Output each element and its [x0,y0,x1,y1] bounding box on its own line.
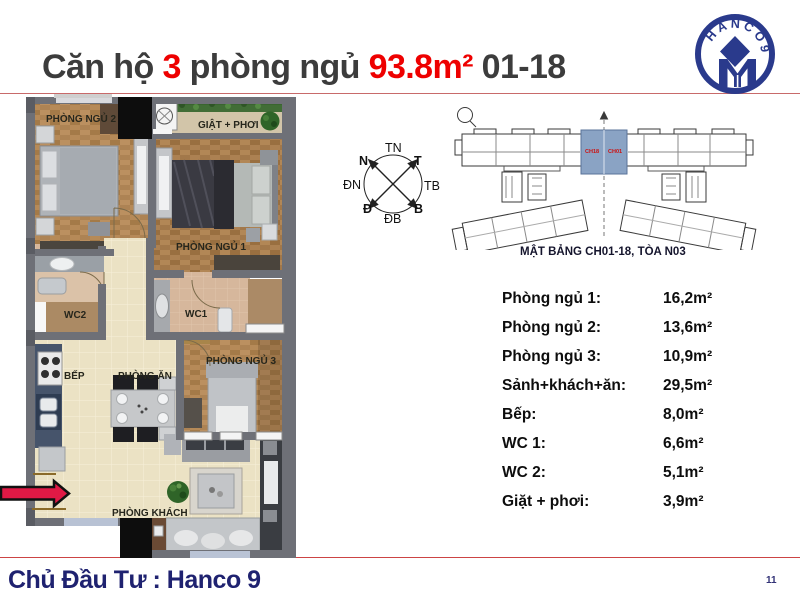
svg-text:PHÒNG NGỦ 2: PHÒNG NGỦ 2 [46,112,116,125]
svg-text:B: B [414,202,423,216]
svg-text:PHÒNG NGỦ 1: PHÒNG NGỦ 1 [176,240,246,253]
svg-text:PHÒNG ĂN: PHÒNG ĂN [118,369,172,382]
svg-text:CH01: CH01 [608,149,622,155]
svg-text:WC2: WC2 [64,310,87,321]
svg-text:TB: TB [424,179,440,193]
svg-text:BẾP: BẾP [64,369,85,382]
svg-text:ĐB: ĐB [384,212,401,226]
svg-text:ĐN: ĐN [343,178,361,192]
svg-text:N: N [359,154,368,168]
svg-text:GIẬT + PHƠI: GIẬT + PHƠI [198,118,259,131]
svg-text:T: T [414,154,422,168]
svg-text:CH18: CH18 [585,149,599,155]
svg-text:PHÒNG KHÁCH: PHÒNG KHÁCH [112,506,188,519]
svg-text:PHÒNG NGỦ 3: PHÒNG NGỦ 3 [206,354,276,367]
svg-text:TN: TN [385,141,402,155]
svg-text:WC1: WC1 [185,309,208,320]
svg-text:Đ: Đ [363,202,372,216]
